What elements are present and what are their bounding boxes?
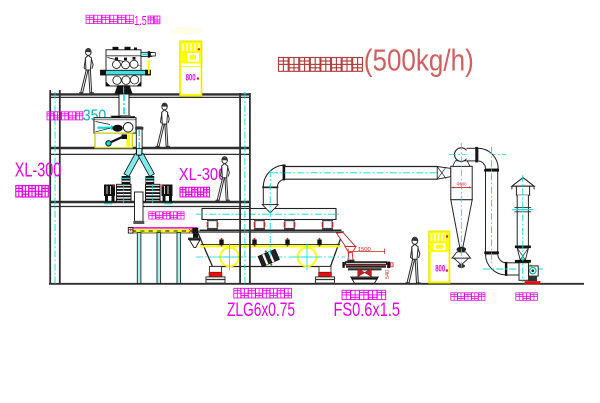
svg-text:XL-300: XL-300 [179,164,227,184]
svg-text:800: 800 [186,73,196,83]
svg-text:1500: 1500 [358,247,371,253]
svg-text:540: 540 [385,270,391,279]
svg-text:1.5: 1.5 [134,13,147,28]
svg-text:800: 800 [435,264,445,274]
svg-text:(500kg/h): (500kg/h) [364,44,474,78]
svg-text:XL-300: XL-300 [15,158,62,181]
svg-text:FS0.6x1.5: FS0.6x1.5 [334,300,401,321]
svg-text:ZLG6x0.75: ZLG6x0.75 [227,300,295,321]
